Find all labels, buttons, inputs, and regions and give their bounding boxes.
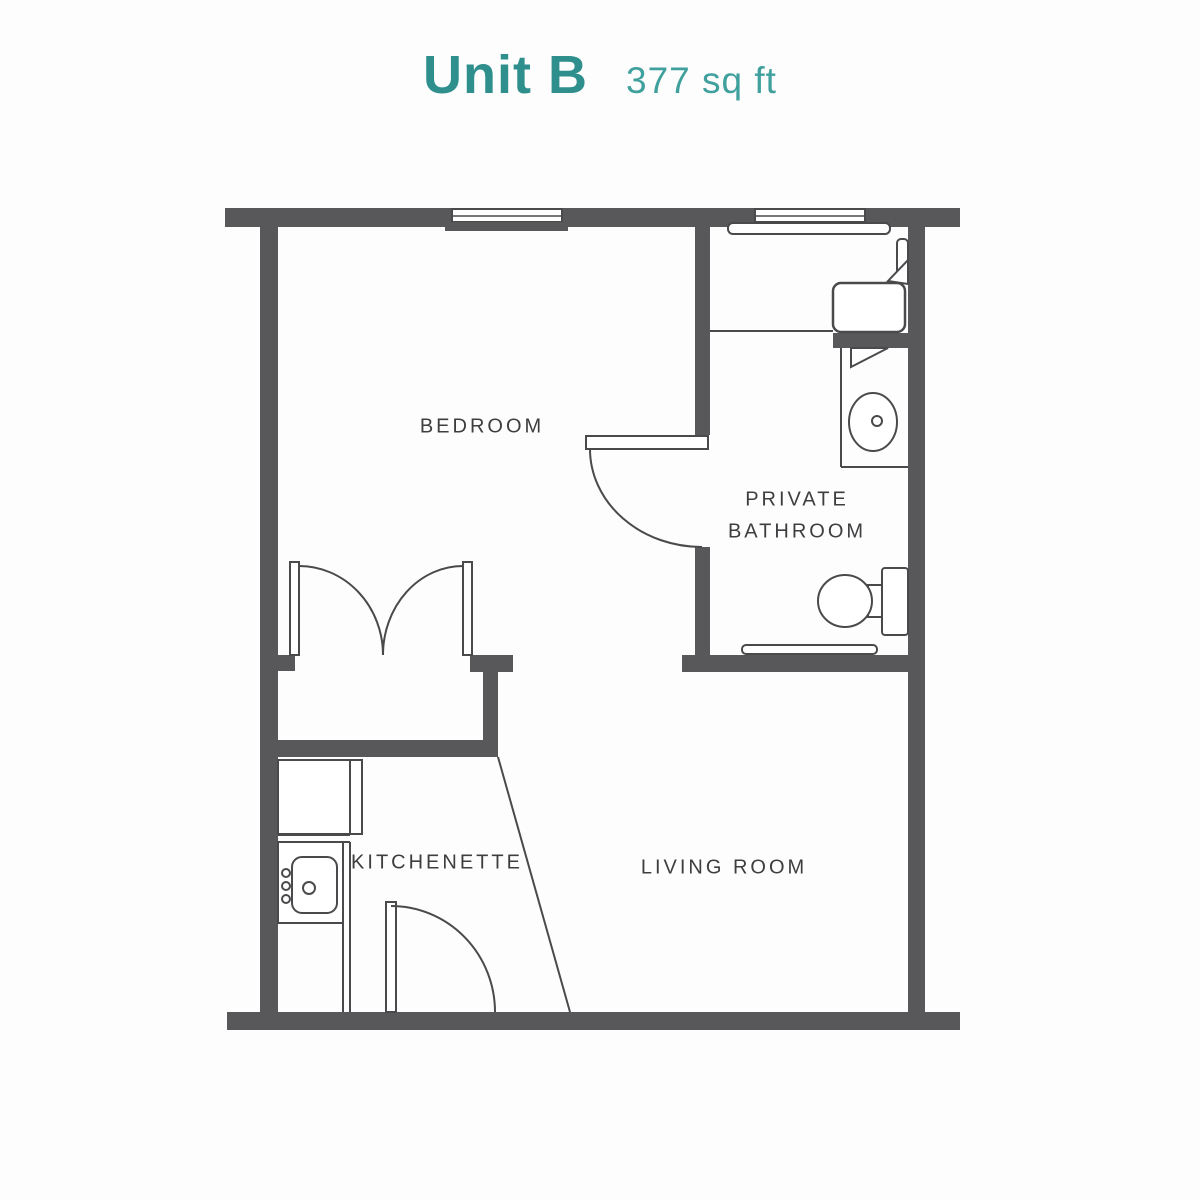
kitchenette-fixtures [278,760,362,1012]
bathroom-fixtures [710,239,908,654]
floorplan-page: Unit B 377 sq ft [0,0,1200,1200]
closet-door-right-swing-arc [383,566,463,655]
entry-door-panel [386,902,396,1012]
unit-area: 377 sq ft [626,62,777,99]
wall-closet-right-stub [470,655,513,672]
kitchenette-label: KITCHENETTE [351,852,523,875]
bathroom-label-line1: PRIVATE [745,489,849,511]
entry-door-swing-arc [391,906,495,1012]
shower-seat [833,283,905,332]
floorplan-drawing [0,0,1200,1200]
closet-door-left-swing-arc [299,566,383,655]
diagonal-partition-line [498,757,570,1012]
wall-bottom [227,1012,960,1030]
bathroom-label: PRIVATE BATHROOM [728,489,866,544]
living-room-label: LIVING ROOM [641,857,807,880]
closet-door-right-panel [463,562,472,655]
bathroom-door-panel [586,436,708,449]
bedroom-label: BEDROOM [420,416,544,439]
vanity-corner-marker [851,348,888,367]
bathroom-window-recess [728,223,890,234]
wall-bedroom-bathroom-lower [695,547,710,657]
wall-right [908,227,925,1012]
bedroom-window-sill [445,222,568,231]
wall-bedroom-bathroom-upper [695,227,710,435]
closet-door-left-panel [290,562,299,655]
closet-double-doors [290,562,472,655]
wall-shower-stub [833,333,908,348]
entry-door [386,902,495,1012]
bathroom-baseboard [742,645,877,654]
wall-closet-left-stub [278,655,295,671]
toilet-tank [882,568,908,635]
bathroom-door [586,436,708,547]
bathroom-door-swing-arc [590,449,702,547]
wall-bathroom-bottom [682,655,925,672]
wall-left [260,227,278,1012]
unit-title: Unit B [423,48,588,102]
plan-header: Unit B 377 sq ft [0,48,1200,102]
toilet-bowl [818,575,872,627]
wall-closet-bottom [262,740,498,757]
bathroom-label-line2: BATHROOM [728,521,866,544]
